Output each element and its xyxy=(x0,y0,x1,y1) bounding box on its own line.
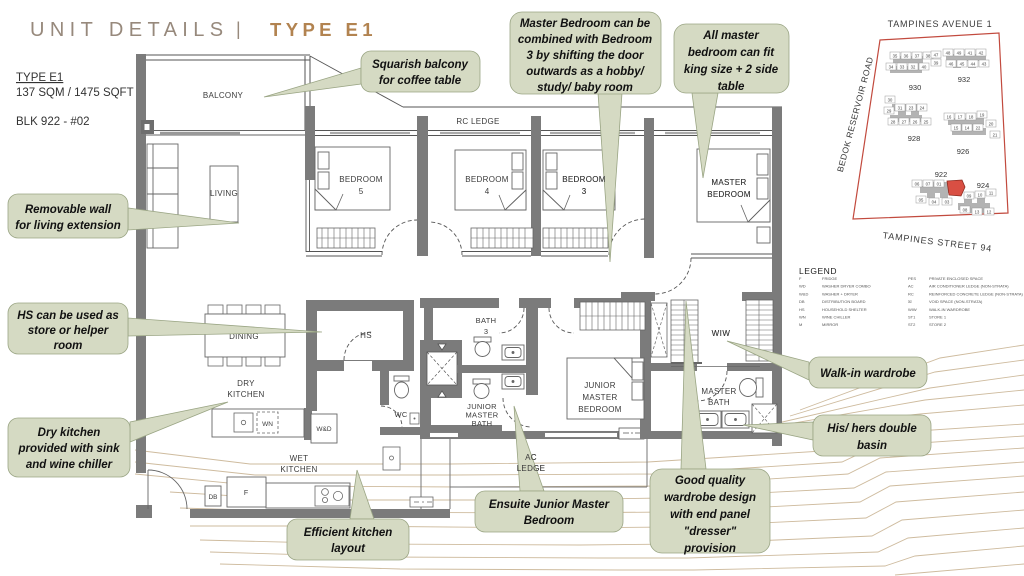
svg-text:WINE CHILLER: WINE CHILLER xyxy=(822,315,851,320)
svg-text:41: 41 xyxy=(968,51,973,56)
svg-text:924: 924 xyxy=(977,181,990,190)
svg-text:BEDROOM: BEDROOM xyxy=(465,175,508,184)
svg-text:WN: WN xyxy=(799,315,806,320)
svg-text:F: F xyxy=(244,490,248,497)
svg-text:M: M xyxy=(799,322,802,327)
svg-text:BATH: BATH xyxy=(476,316,497,325)
svg-text:WASHER + DRYER: WASHER + DRYER xyxy=(822,291,858,296)
svg-text:Squarish balcony: Squarish balcony xyxy=(372,59,468,71)
svg-text:24: 24 xyxy=(920,106,925,111)
svg-text:KITCHEN: KITCHEN xyxy=(227,390,264,399)
svg-text:WIW: WIW xyxy=(712,329,731,338)
svg-text:BATH: BATH xyxy=(708,398,730,407)
svg-text:STORE 1: STORE 1 xyxy=(929,315,947,320)
svg-text:bedroom can fit: bedroom can fit xyxy=(688,47,775,59)
svg-text:DISTRIBUTION BOARD: DISTRIBUTION BOARD xyxy=(822,299,866,304)
svg-text:BEDROOM: BEDROOM xyxy=(707,190,750,199)
svg-text:All master: All master xyxy=(702,30,759,42)
svg-text:W&D: W&D xyxy=(316,426,331,433)
svg-text:PES: PES xyxy=(908,276,916,281)
svg-text:provided with sink: provided with sink xyxy=(18,443,121,455)
svg-text:21: 21 xyxy=(993,133,998,138)
svg-text:5: 5 xyxy=(359,187,364,196)
svg-text:RC: RC xyxy=(908,291,914,296)
svg-text:3: 3 xyxy=(484,327,488,336)
svg-text:08: 08 xyxy=(963,208,968,213)
svg-text:BEDROOM: BEDROOM xyxy=(339,175,382,184)
svg-text:43: 43 xyxy=(982,62,987,67)
svg-text:932: 932 xyxy=(958,75,971,84)
svg-text:WET: WET xyxy=(290,454,309,463)
svg-text:UNIT DETAILS: UNIT DETAILS xyxy=(30,19,229,41)
svg-text:4: 4 xyxy=(485,187,490,196)
svg-text:3: 3 xyxy=(582,187,587,196)
svg-text:30: 30 xyxy=(888,98,893,103)
svg-text:VOID SPACE (NON-STRATA): VOID SPACE (NON-STRATA) xyxy=(929,299,983,304)
svg-text:34: 34 xyxy=(889,65,894,70)
svg-text:3 by shifting the door: 3 by shifting the door xyxy=(527,50,644,62)
svg-text:Bedroom: Bedroom xyxy=(524,515,574,527)
svg-text:11: 11 xyxy=(989,191,994,196)
svg-text:42: 42 xyxy=(979,51,984,56)
svg-text:33: 33 xyxy=(900,65,905,70)
svg-text:HS: HS xyxy=(799,307,805,312)
svg-text:40: 40 xyxy=(922,65,927,70)
svg-text:store or helper: store or helper xyxy=(28,325,109,337)
svg-text:AC: AC xyxy=(908,284,914,289)
svg-text:137 SQM / 1475 SQFT: 137 SQM / 1475 SQFT xyxy=(16,87,134,99)
svg-text:12: 12 xyxy=(987,210,992,215)
svg-text:WC: WC xyxy=(394,410,407,419)
svg-text:05: 05 xyxy=(919,198,924,203)
svg-text:27: 27 xyxy=(902,120,907,125)
svg-text:TAMPINES AVENUE 1: TAMPINES AVENUE 1 xyxy=(888,19,993,29)
svg-text:Master Bedroom can be: Master Bedroom can be xyxy=(520,18,651,30)
svg-text:DB: DB xyxy=(799,299,805,304)
svg-text:01: 01 xyxy=(937,182,942,187)
svg-text:10: 10 xyxy=(978,193,983,198)
svg-text:with end panel: with end panel xyxy=(670,509,751,521)
svg-text:Walk-in wardrobe: Walk-in wardrobe xyxy=(820,368,916,380)
svg-text:HS: HS xyxy=(360,331,372,340)
svg-text:MASTER: MASTER xyxy=(701,387,736,396)
svg-text:FRIDGE: FRIDGE xyxy=(822,276,837,281)
svg-text:04: 04 xyxy=(932,200,937,205)
svg-text:Dry kitchen: Dry kitchen xyxy=(38,427,101,439)
svg-text:REINFORCED CONCRETE LEDGE (NON: REINFORCED CONCRETE LEDGE (NON-STRATA) xyxy=(929,291,1024,296)
svg-text:09: 09 xyxy=(967,194,972,199)
svg-text:provision: provision xyxy=(683,543,736,555)
svg-text:LIVING: LIVING xyxy=(210,189,238,198)
svg-text:31: 31 xyxy=(898,106,903,111)
svg-text:06: 06 xyxy=(915,182,920,187)
svg-text:AIR CONDITIONER LEDGE (NON-STR: AIR CONDITIONER LEDGE (NON-STRATA) xyxy=(929,284,1009,289)
svg-text:19: 19 xyxy=(980,113,985,118)
svg-text:TYPE E1: TYPE E1 xyxy=(270,19,377,40)
svg-text:16: 16 xyxy=(947,115,952,120)
svg-text:25: 25 xyxy=(924,120,929,125)
svg-text:W&D: W&D xyxy=(799,291,808,296)
svg-text:DRY: DRY xyxy=(237,379,255,388)
svg-text:RC LEDGE: RC LEDGE xyxy=(456,117,499,126)
svg-text:TYPE E1: TYPE E1 xyxy=(16,72,63,84)
svg-text:48: 48 xyxy=(946,51,951,56)
svg-text:LEGEND: LEGEND xyxy=(799,266,837,276)
svg-text:15: 15 xyxy=(954,126,959,131)
svg-text:BEDROOM: BEDROOM xyxy=(578,405,621,414)
svg-text:WIW: WIW xyxy=(908,307,917,312)
svg-text:study/ baby room: study/ baby room xyxy=(537,82,633,94)
svg-text:37: 37 xyxy=(915,54,920,59)
svg-text:WN: WN xyxy=(262,421,273,428)
svg-text:|: | xyxy=(236,19,241,39)
svg-text:ST1: ST1 xyxy=(908,315,916,320)
svg-text:JUNIOR: JUNIOR xyxy=(584,381,616,390)
svg-text:Ensuite Junior Master: Ensuite Junior Master xyxy=(489,499,610,511)
svg-text:MIRROR: MIRROR xyxy=(822,322,838,327)
svg-text:47: 47 xyxy=(934,53,939,58)
svg-text:MASTER: MASTER xyxy=(582,393,617,402)
svg-text:23: 23 xyxy=(909,106,914,111)
svg-text:and wine chiller: and wine chiller xyxy=(26,459,113,471)
svg-text:PRIVATE ENCLOSED SPACE: PRIVATE ENCLOSED SPACE xyxy=(929,276,983,281)
svg-text:"dresser": "dresser" xyxy=(684,526,737,538)
svg-text:926: 926 xyxy=(957,147,970,156)
svg-text:AC: AC xyxy=(525,453,537,462)
svg-text:WD: WD xyxy=(799,284,806,289)
svg-text:38: 38 xyxy=(926,54,931,59)
svg-text:KITCHEN: KITCHEN xyxy=(280,465,317,474)
svg-text:for living extension: for living extension xyxy=(15,220,120,232)
svg-text:WALK-IN WARDROBE: WALK-IN WARDROBE xyxy=(929,307,970,312)
svg-text:44: 44 xyxy=(971,62,976,67)
svg-text:WASHER DRYER COMBO: WASHER DRYER COMBO xyxy=(822,284,871,289)
svg-text:table: table xyxy=(718,81,745,93)
svg-text:king size + 2 side: king size + 2 side xyxy=(684,64,779,76)
svg-text:29: 29 xyxy=(887,109,892,114)
svg-text:17: 17 xyxy=(958,115,963,120)
svg-text:for coffee table: for coffee table xyxy=(379,75,462,87)
svg-text:32: 32 xyxy=(911,65,916,70)
svg-text:26: 26 xyxy=(913,120,918,125)
svg-text:14: 14 xyxy=(965,126,970,131)
svg-text:wardrobe design: wardrobe design xyxy=(664,492,756,504)
svg-text:39: 39 xyxy=(934,61,939,66)
svg-text:layout: layout xyxy=(331,543,366,555)
svg-text:03: 03 xyxy=(945,200,950,205)
svg-text:928: 928 xyxy=(908,134,921,143)
svg-text:45: 45 xyxy=(960,62,965,67)
svg-text:18: 18 xyxy=(969,115,974,120)
svg-text:DB: DB xyxy=(208,494,217,501)
svg-text:22: 22 xyxy=(976,126,981,131)
svg-text:BLK 922 - #02: BLK 922 - #02 xyxy=(16,116,90,128)
svg-text:930: 930 xyxy=(909,83,922,92)
svg-text:46: 46 xyxy=(949,62,954,67)
svg-text:Removable wall: Removable wall xyxy=(25,204,112,216)
svg-text:His/ hers double: His/ hers double xyxy=(827,423,917,435)
svg-text:MASTER: MASTER xyxy=(711,178,746,187)
svg-text:room: room xyxy=(54,340,83,352)
svg-text:35: 35 xyxy=(893,54,898,59)
svg-text:36: 36 xyxy=(904,54,909,59)
svg-text:922: 922 xyxy=(935,170,948,179)
svg-text:Good quality: Good quality xyxy=(675,475,746,487)
svg-text:BALCONY: BALCONY xyxy=(203,91,244,100)
svg-text:49: 49 xyxy=(957,51,962,56)
svg-text:Efficient kitchen: Efficient kitchen xyxy=(304,527,393,539)
svg-text:BATH: BATH xyxy=(472,419,493,428)
svg-text:☒: ☒ xyxy=(908,299,912,304)
svg-text:20: 20 xyxy=(989,122,994,127)
svg-text:ST2: ST2 xyxy=(908,322,916,327)
svg-text:HOUSEHOLD SHELTER: HOUSEHOLD SHELTER xyxy=(822,307,867,312)
svg-text:STORE 2: STORE 2 xyxy=(929,322,947,327)
svg-text:HS can be used as: HS can be used as xyxy=(17,310,119,322)
svg-text:LEDGE: LEDGE xyxy=(517,464,546,473)
svg-text:BEDROOM: BEDROOM xyxy=(562,175,605,184)
svg-text:outwards as a hobby/: outwards as a hobby/ xyxy=(526,66,645,78)
svg-text:07: 07 xyxy=(926,182,931,187)
svg-text:13: 13 xyxy=(975,210,980,215)
svg-text:basin: basin xyxy=(857,440,887,452)
svg-text:28: 28 xyxy=(891,120,896,125)
svg-text:combined with Bedroom: combined with Bedroom xyxy=(518,34,652,46)
